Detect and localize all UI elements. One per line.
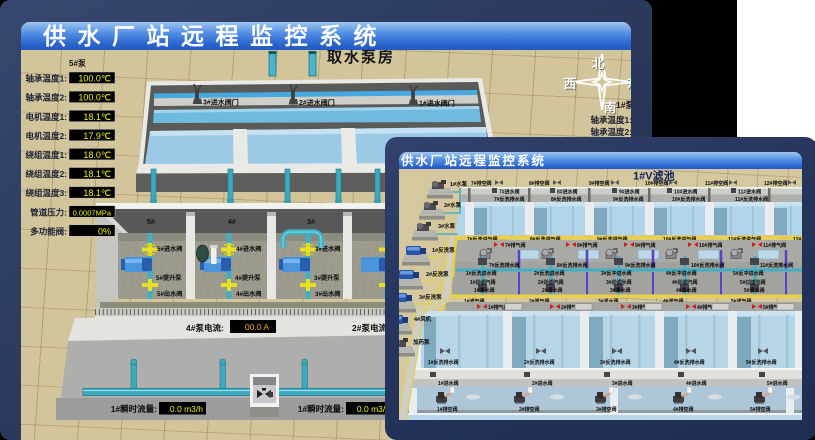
svg-text:3#提升泵: 3#提升泵 [314,274,340,282]
svg-text:0.0 m3/h: 0.0 m3/h [170,404,203,414]
svg-text:3#反洗泵: 3#反洗泵 [419,293,442,301]
svg-text:轴承温度1:: 轴承温度1: [25,74,67,84]
svg-text:8#反洗排水阀: 8#反洗排水阀 [551,196,582,203]
svg-text:2#反洗进水阀: 2#反洗进水阀 [534,270,565,277]
svg-text:1#瞬时流量:: 1#瞬时流量: [298,404,344,414]
svg-text:4#清水阀: 4#清水阀 [676,287,697,294]
svg-text:10#排气阀: 10#排气阀 [699,242,722,249]
svg-text:取水泵房: 取水泵房 [327,50,395,66]
svg-text:3#: 3# [307,219,315,226]
svg-text:5#反洗排水阀: 5#反洗排水阀 [746,359,777,366]
svg-text:5#排空阀: 5#排空阀 [750,406,771,413]
svg-text:1#反洗泵: 1#反洗泵 [432,246,455,254]
svg-text:2#过滤气阀: 2#过滤气阀 [538,279,564,286]
svg-text:2#反洗泵: 2#反洗泵 [426,270,449,278]
svg-text:12#排空阀: 12#排空阀 [764,180,787,187]
svg-text:4#过滤气阀: 4#过滤气阀 [672,279,698,286]
svg-text:11#排空阀: 11#排空阀 [705,180,728,187]
svg-text:3#过滤水阀: 3#过滤水阀 [606,279,632,286]
svg-text:18.0℃: 18.0℃ [83,150,111,160]
svg-text:100.0℃: 100.0℃ [78,74,111,84]
svg-text:1#水泵: 1#水泵 [450,180,468,188]
svg-text:17.9℃: 17.9℃ [83,131,111,141]
svg-text:7#反洗排水阀: 7#反洗排水阀 [489,262,520,269]
svg-text:11#反洗排水阀: 11#反洗排水阀 [760,262,793,269]
svg-text:1#反洗进水阀: 1#反洗进水阀 [466,270,497,277]
svg-text:2#进水阀: 2#进水阀 [532,380,553,387]
svg-text:北: 北 [592,56,605,71]
svg-text:5#泵: 5#泵 [69,59,86,68]
svg-text:1#排空阀: 1#排空阀 [437,406,458,413]
svg-text:7#排空阀: 7#排空阀 [471,180,492,187]
svg-text:2#水泵: 2#水泵 [444,201,462,209]
svg-text:18.1℃: 18.1℃ [83,169,111,179]
svg-text:7#反洗排水阀: 7#反洗排水阀 [494,196,525,203]
svg-text:10#反洗排水阀: 10#反洗排水阀 [691,262,724,269]
svg-text:4#泵电流:: 4#泵电流: [186,323,224,333]
svg-text:10#进水阀: 10#进水阀 [674,189,697,196]
svg-text:8#进水阀: 8#进水阀 [557,189,578,196]
svg-text:8#排空阀: 8#排空阀 [529,180,550,187]
svg-text:2#清水阀: 2#清水阀 [542,287,563,294]
svg-text:4#进水阀: 4#进水阀 [236,245,261,253]
svg-text:8#反洗排水阀: 8#反洗排水阀 [557,262,588,269]
svg-text:9#反洗排水阀: 9#反洗排水阀 [625,262,656,269]
svg-text:4#排空阀: 4#排空阀 [673,406,694,413]
svg-text:3#出水阀: 3#出水阀 [315,290,340,298]
svg-text:7#进水阀: 7#进水阀 [499,189,520,196]
svg-text:5#提升泵: 5#提升泵 [156,274,182,282]
svg-text:轴承温度2:: 轴承温度2: [590,127,631,137]
svg-text:3#进水阀: 3#进水阀 [612,380,633,387]
svg-text:1#反洗排水阀: 1#反洗排水阀 [428,359,459,366]
svg-text:18.1℃: 18.1℃ [83,112,111,122]
svg-text:8#排气阀: 8#排气阀 [577,242,598,249]
svg-text:9#排空阀: 9#排空阀 [589,180,610,187]
svg-text:3#清水阀: 3#清水阀 [610,287,631,294]
svg-text:9#反洗排水阀: 9#反洗排水阀 [613,196,644,203]
svg-text:轴承温度2:: 轴承温度2: [25,93,67,103]
svg-text:1#进水阀门: 1#进水阀门 [419,99,455,108]
svg-text:4#反冲进水阀: 4#反冲进水阀 [666,270,697,277]
svg-text:5#清水阀: 5#清水阀 [744,287,765,294]
svg-text:加药泵: 加药泵 [412,338,430,346]
svg-text:2#排空阀: 2#排空阀 [519,406,540,413]
svg-text:1#过滤气阀: 1#过滤气阀 [470,279,496,286]
svg-text:1#清水阀: 1#清水阀 [474,287,495,294]
svg-text:5#进水阀: 5#进水阀 [157,245,182,253]
svg-text:9#排气阀: 9#排气阀 [635,242,656,249]
svg-text:5#反冲进水阀: 5#反冲进水阀 [733,270,764,277]
svg-text:00.0 A: 00.0 A [245,322,269,332]
svg-text:9#进水阀: 9#进水阀 [619,189,640,196]
svg-text:绕组温度3:: 绕组温度3: [25,188,67,198]
svg-text:2#反洗排水阀: 2#反洗排水阀 [524,359,555,366]
svg-text:多功能阀:: 多功能阀: [30,226,67,236]
svg-text:0.0007MPa: 0.0007MPa [73,208,112,217]
svg-text:4#风机: 4#风机 [414,315,432,323]
svg-text:4#提升泵: 4#提升泵 [235,274,261,282]
svg-text:11#进水阀: 11#进水阀 [738,189,761,196]
svg-text:3#进水阀门: 3#进水阀门 [203,98,239,107]
svg-text:3#反冲进水阀: 3#反冲进水阀 [601,270,632,277]
svg-text:3#水泵: 3#水泵 [438,222,456,230]
svg-text:绕组温度1:: 绕组温度1: [25,150,67,160]
svg-text:电机温度1:: 电机温度1: [25,112,67,122]
svg-text:4#反洗排水阀: 4#反洗排水阀 [674,359,705,366]
svg-text:5#: 5# [147,219,155,226]
svg-text:轴承温度1:: 轴承温度1: [590,115,631,125]
svg-text:18.1℃: 18.1℃ [83,188,111,198]
svg-text:东: 东 [627,76,631,91]
svg-text:11#排气阀: 11#排气阀 [763,242,786,249]
svg-text:1#瞬时流量:: 1#瞬时流量: [111,404,157,414]
svg-text:绕组温度2:: 绕组温度2: [25,169,67,179]
svg-text:5#出水阀: 5#出水阀 [157,290,182,298]
svg-text:1#进水阀: 1#进水阀 [438,380,459,387]
svg-text:1#泵: 1#泵 [616,100,631,110]
svg-text:3#反洗排水阀: 3#反洗排水阀 [600,359,631,366]
svg-text:7#排气阀: 7#排气阀 [505,242,526,249]
svg-text:100.0℃: 100.0℃ [78,93,111,103]
svg-text:10#反洗排水阀: 10#反洗排水阀 [672,196,705,203]
svg-text:3#排空阀: 3#排空阀 [596,406,617,413]
svg-text:11#反洗排水阀: 11#反洗排水阀 [735,196,768,203]
svg-text:管道压力:: 管道压力: [30,207,67,217]
svg-text:0%: 0% [98,226,111,236]
svg-text:南: 南 [604,100,617,115]
svg-text:西: 西 [564,77,577,91]
svg-text:4#进水阀: 4#进水阀 [686,380,707,387]
svg-text:4#: 4# [228,219,236,226]
svg-text:4#出水阀: 4#出水阀 [236,290,261,298]
svg-text:电机温度2:: 电机温度2: [25,131,67,141]
svg-text:2#进水阀门: 2#进水阀门 [299,98,335,107]
svg-text:5#进水阀: 5#进水阀 [767,380,788,387]
svg-text:10#排空阀: 10#排空阀 [645,180,668,187]
